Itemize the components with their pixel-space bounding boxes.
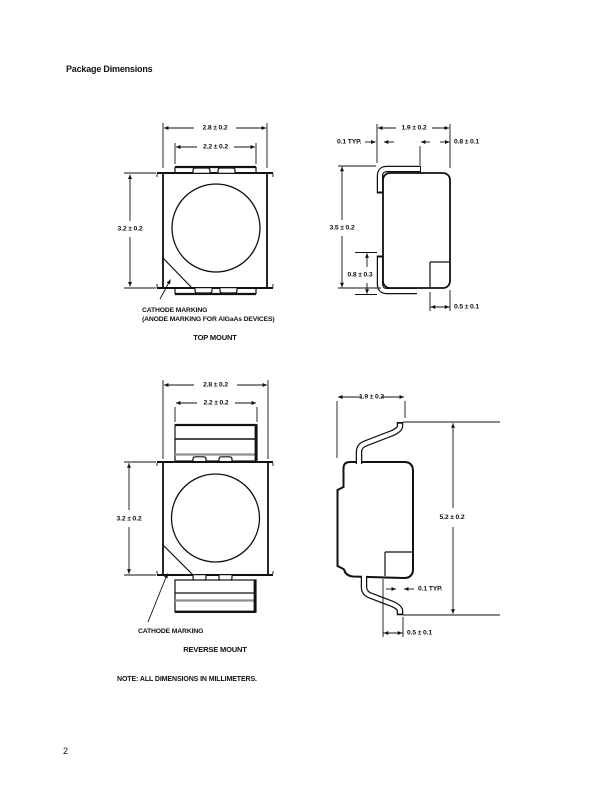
dim-lead-thickness-label: 0.1 TYP. xyxy=(337,139,362,146)
reverse-mount-caption: REVERSE MOUNT xyxy=(183,645,247,654)
lead-tab xyxy=(220,288,237,293)
reverse-mount-front-drawing: 2.8 ± 0.2 2.2 ± 0.2 3.2 ± 0.2 CATHODE MA… xyxy=(100,375,310,665)
lead-tab xyxy=(218,168,235,173)
dim-top-offset-label: 0.8 ± 0.1 xyxy=(454,139,479,146)
top-mount-front-drawing: 2.8 ± 0.2 2.2 ± 0.2 3.2 ± 0.2 CATHODE MA… xyxy=(100,115,310,355)
lead-tab xyxy=(195,288,212,293)
cathode-marking-note-line1: CATHODE MARKING xyxy=(142,307,207,314)
dim-lead-height-label: 0.8 ± 0.3 xyxy=(347,272,372,279)
cathode-marking-arrow xyxy=(148,574,168,623)
reverse-mount-side-drawing: 1.9 ± 0.2 5.2 ± 0.2 0.1 TYP. 0.5 ± 0.1 xyxy=(320,385,520,650)
led-dome-circle xyxy=(172,474,260,562)
page-title: Package Dimensions xyxy=(66,64,152,74)
cathode-marking-note: CATHODE MARKING xyxy=(138,628,203,635)
dim-height-label: 3.2 ± 0.2 xyxy=(117,226,142,233)
dim-foot-width-label: 0.5 ± 0.1 xyxy=(407,630,432,637)
dim-height-label: 3.5 ± 0.2 xyxy=(329,225,354,232)
dim-height-label: 3.2 ± 0.2 xyxy=(116,516,141,523)
top-mount-caption: TOP MOUNT xyxy=(193,333,237,342)
dim-outer-width-label: 2.8 ± 0.2 xyxy=(203,382,228,389)
package-body-side xyxy=(380,169,450,291)
lead-tab xyxy=(193,168,210,173)
dimensions-note: NOTE: ALL DIMENSIONS IN MILLIMETERS. xyxy=(117,676,257,683)
dim-outer-width-label: 2.8 ± 0.2 xyxy=(202,125,227,132)
cathode-marking-note-line2: (ANODE MARKING FOR AlGaAs DEVICES) xyxy=(142,316,274,323)
lower-lead-stack xyxy=(175,580,256,612)
dim-foot-width-label: 0.5 ± 0.1 xyxy=(454,304,479,311)
dim-inner-width-label: 2.2 ± 0.2 xyxy=(203,144,228,151)
datasheet-page: Package Dimensions xyxy=(0,0,612,792)
dim-inner-width-label: 2.2 ± 0.2 xyxy=(203,400,228,407)
top-mount-side-drawing: 1.9 ± 0.2 0.1 TYP. 0.8 ± 0.1 3.5 ± 0.2 0… xyxy=(320,115,505,315)
package-body-side xyxy=(338,422,414,615)
dim-width-label: 1.9 ± 0.2 xyxy=(359,394,384,401)
dim-height-label: 5.2 ± 0.2 xyxy=(439,514,464,521)
dim-lead-thickness-label: 0.1 TYP. xyxy=(418,586,443,593)
package-outline xyxy=(338,462,414,578)
led-dome-circle xyxy=(172,184,260,272)
upper-lead-stack xyxy=(175,425,257,461)
page-number: 2 xyxy=(63,746,68,756)
package-body-front xyxy=(157,167,273,294)
dim-width-label: 1.9 ± 0.2 xyxy=(401,125,426,132)
package-body-front xyxy=(157,425,273,612)
package-outline xyxy=(383,173,450,288)
